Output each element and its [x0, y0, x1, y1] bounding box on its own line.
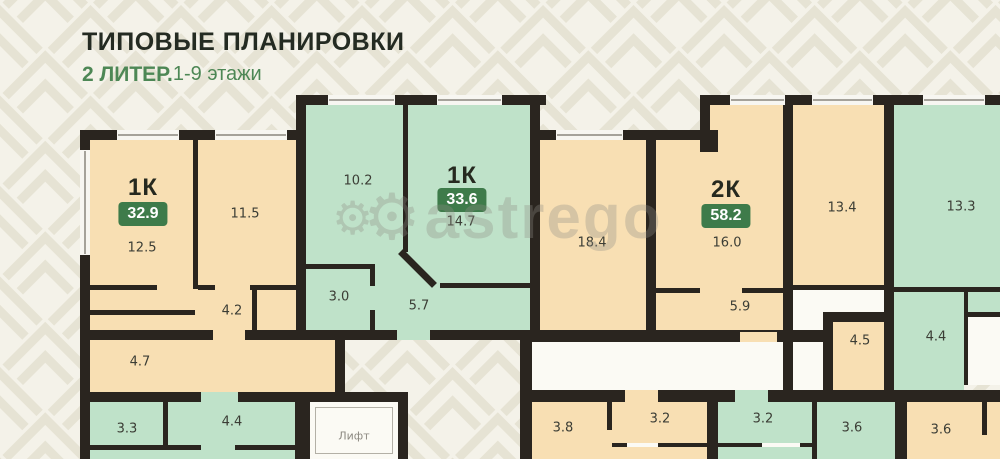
window	[117, 130, 179, 140]
wall	[884, 105, 894, 390]
door-opening	[735, 390, 768, 402]
lift-label: Лифт	[338, 430, 369, 443]
wall	[530, 105, 540, 339]
partition	[85, 445, 201, 450]
corridor-sliver	[793, 290, 884, 312]
partition	[812, 402, 817, 459]
apartment-type-2k: 2К	[711, 176, 741, 204]
room-label-13-3: 13.3	[947, 200, 976, 215]
room-right-13-3	[894, 105, 1000, 287]
partition	[658, 443, 707, 447]
corridor-main	[532, 342, 823, 392]
room-label-4-7: 4.7	[130, 355, 151, 370]
room-bottomright-green	[718, 402, 895, 459]
window	[328, 95, 395, 105]
partition	[85, 310, 195, 315]
partition	[718, 443, 762, 447]
room-label-3-2-b: 3.2	[753, 412, 774, 427]
wall	[823, 312, 833, 392]
room-label-4-5: 4.5	[850, 334, 871, 349]
room-label-12-5: 12.5	[128, 241, 157, 256]
partition	[964, 292, 968, 385]
wall	[895, 400, 907, 459]
floor-plan-canvas: ТИПОВЫЕ ПЛАНИРОВКИ 2 ЛИТЕР. 1-9 этажи	[0, 0, 1000, 459]
apartment-type-1k-b: 1К	[447, 162, 477, 190]
partition	[370, 310, 375, 330]
room-label-10-2: 10.2	[344, 174, 373, 189]
room-label-3-0: 3.0	[329, 290, 350, 305]
partition	[198, 285, 215, 290]
room-right-white	[968, 317, 1000, 385]
door-opening	[627, 443, 658, 447]
room-label-3-8: 3.8	[553, 421, 574, 436]
wall	[398, 392, 408, 459]
room-apt3-bedroom-top	[710, 105, 783, 145]
partition	[85, 285, 157, 290]
window	[923, 95, 985, 105]
partition	[650, 288, 700, 293]
room-right-sliver	[964, 292, 1000, 312]
partition	[742, 288, 783, 293]
wall	[783, 105, 793, 400]
wall	[295, 392, 310, 459]
window	[215, 130, 287, 140]
room-label-5-9: 5.9	[730, 300, 751, 315]
room-label-13-4: 13.4	[828, 201, 857, 216]
wall	[296, 105, 306, 339]
header: ТИПОВЫЕ ПЛАНИРОВКИ 2 ЛИТЕР. 1-9 этажи	[82, 28, 404, 87]
wall	[700, 130, 718, 152]
door-opening	[740, 332, 777, 342]
partition	[370, 264, 375, 286]
partition	[252, 290, 257, 330]
room-label-5-7: 5.7	[409, 299, 430, 314]
partition	[982, 402, 987, 435]
floors-label: 1-9 этажи	[173, 63, 262, 86]
apartment-type-1k-a: 1К	[128, 174, 158, 202]
page-subtitle: 2 ЛИТЕР. 1-9 этажи	[82, 63, 404, 87]
window	[437, 95, 502, 105]
room-label-3-6-b: 3.6	[931, 423, 952, 438]
room-label-14-7: 14.7	[447, 215, 476, 230]
door-opening	[625, 390, 658, 402]
partition	[793, 285, 884, 290]
partition	[800, 443, 812, 447]
window	[812, 95, 873, 105]
room-right-4-5	[833, 322, 884, 392]
block-label: 2 ЛИТЕР.	[82, 63, 173, 86]
door-opening	[762, 443, 800, 447]
area-badge-58-2: 58.2	[701, 204, 750, 228]
area-badge-32-9: 32.9	[118, 202, 167, 226]
room-label-4-4-right: 4.4	[926, 330, 947, 345]
wall	[707, 400, 718, 459]
partition	[440, 283, 530, 288]
partition	[403, 105, 408, 252]
wall	[306, 392, 406, 402]
partition	[612, 443, 627, 447]
room-label-16-0: 16.0	[713, 236, 742, 251]
wall	[532, 330, 823, 342]
wall	[646, 139, 656, 332]
room-label-18-4: 18.4	[578, 236, 607, 251]
room-label-3-6-a: 3.6	[842, 421, 863, 436]
area-badge-33-6: 33.6	[437, 188, 486, 212]
room-apt3-living	[540, 139, 646, 330]
partition	[163, 402, 168, 445]
room-apt1-bath	[89, 339, 335, 392]
partition	[964, 312, 1000, 317]
partition	[607, 402, 612, 430]
window	[730, 95, 785, 105]
partition	[235, 445, 295, 450]
room-label-11-5: 11.5	[231, 207, 260, 222]
window	[556, 130, 623, 140]
door-opening	[397, 330, 430, 340]
partition	[193, 139, 198, 289]
wall	[823, 312, 884, 322]
page-title: ТИПОВЫЕ ПЛАНИРОВКИ	[82, 28, 404, 57]
room-label-4-4-left: 4.4	[222, 415, 243, 430]
room-label-3-2-a: 3.2	[650, 412, 671, 427]
partition	[306, 264, 372, 269]
room-label-3-3: 3.3	[117, 422, 138, 437]
partition	[894, 287, 1000, 292]
door-opening	[201, 392, 238, 402]
room-label-4-2: 4.2	[222, 304, 243, 319]
room-right-13-4	[793, 105, 884, 285]
door-opening	[213, 330, 245, 340]
window	[80, 150, 90, 255]
